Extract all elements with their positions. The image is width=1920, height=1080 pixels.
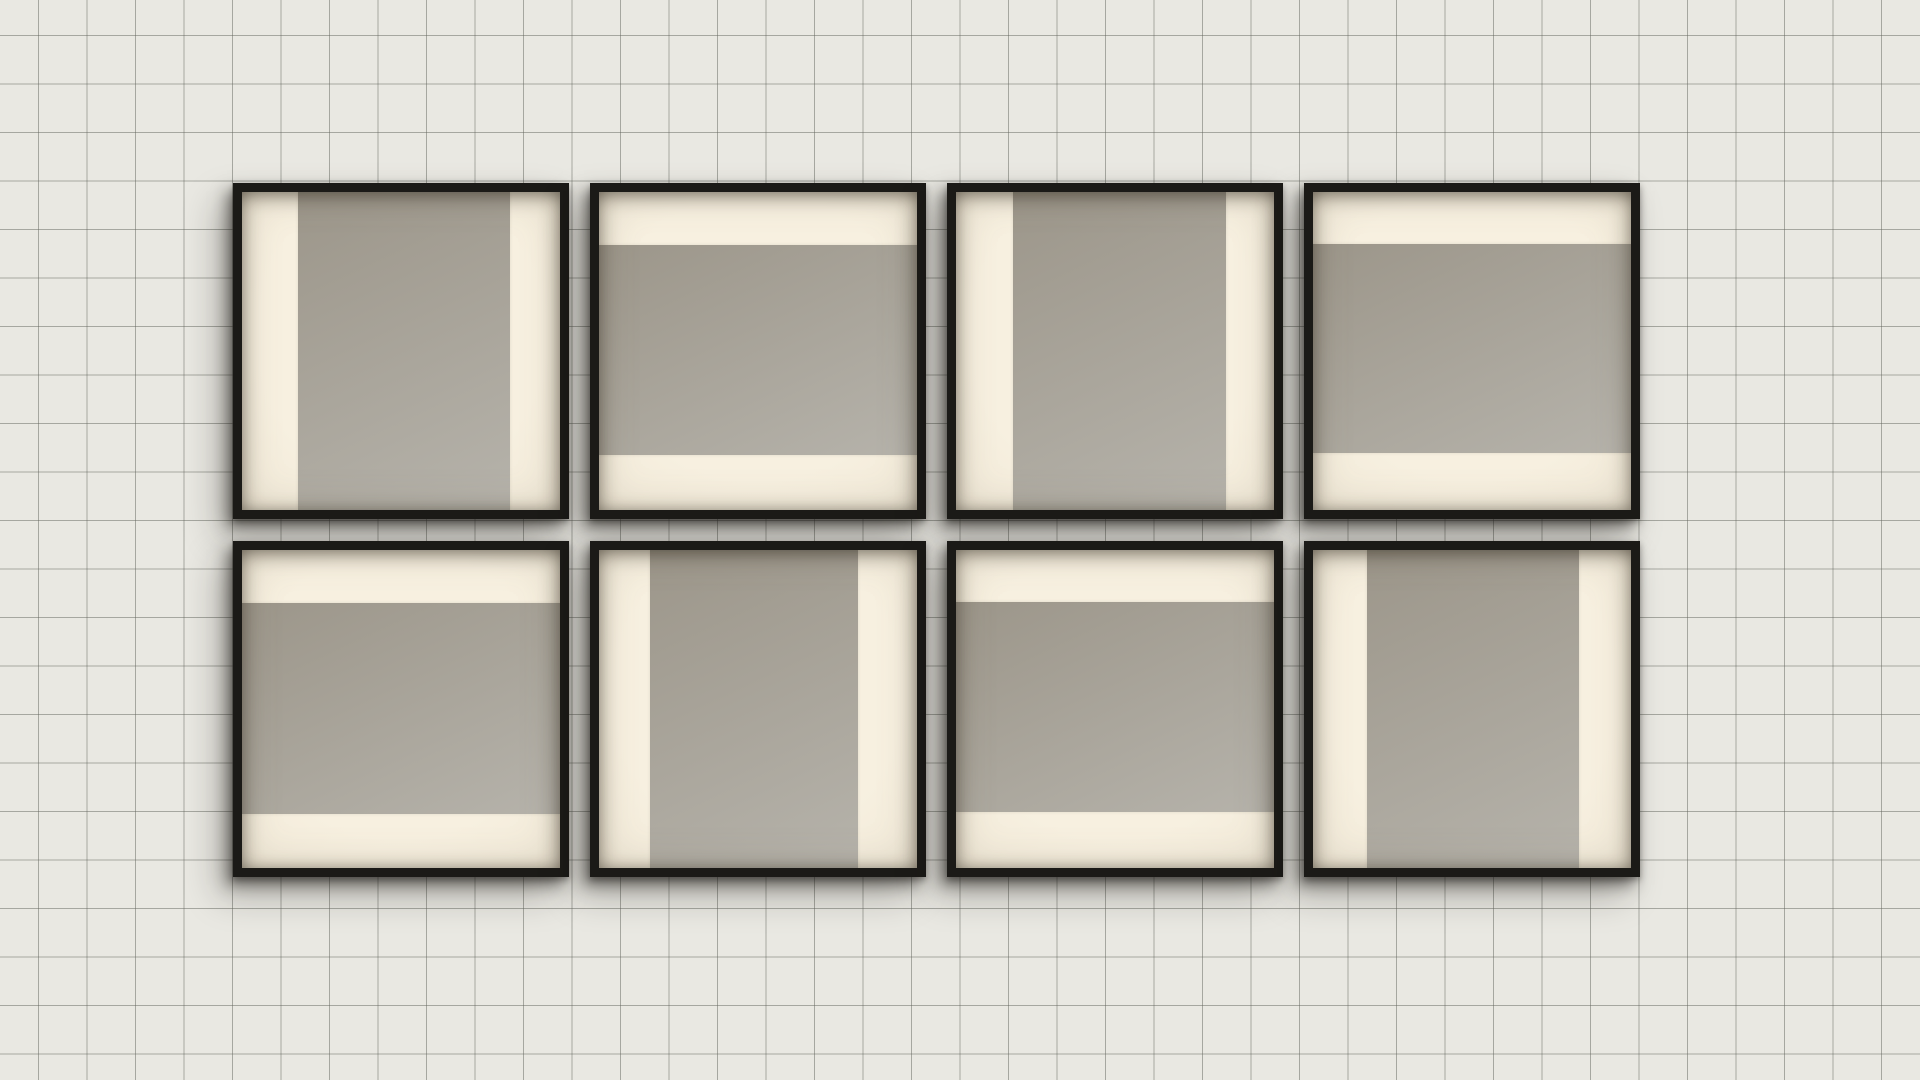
artwork-mat	[956, 550, 1274, 868]
artwork-bar-vertical	[1367, 550, 1578, 868]
artwork-bar-horizontal	[956, 602, 1274, 812]
artwork-bar-horizontal	[1313, 244, 1631, 453]
artwork-bar-horizontal	[599, 245, 917, 456]
artwork-mat	[1313, 192, 1631, 510]
artwork-frame-6	[590, 541, 926, 877]
artwork-bar-vertical	[1013, 192, 1226, 510]
artwork-bar-vertical	[650, 550, 858, 868]
artwork-mat	[242, 550, 560, 868]
artwork-mat	[956, 192, 1274, 510]
gallery-wall	[0, 0, 1920, 1080]
artwork-frame-8	[1304, 541, 1640, 877]
frames-container	[0, 0, 1920, 1080]
artwork-mat	[599, 550, 917, 868]
artwork-frame-1	[233, 183, 569, 519]
artwork-frame-5	[233, 541, 569, 877]
artwork-mat	[1313, 550, 1631, 868]
artwork-mat	[599, 192, 917, 510]
artwork-frame-4	[1304, 183, 1640, 519]
artwork-bar-vertical	[298, 192, 511, 510]
artwork-frame-7	[947, 541, 1283, 877]
artwork-mat	[242, 192, 560, 510]
artwork-bar-horizontal	[242, 603, 560, 814]
artwork-frame-3	[947, 183, 1283, 519]
artwork-frame-2	[590, 183, 926, 519]
